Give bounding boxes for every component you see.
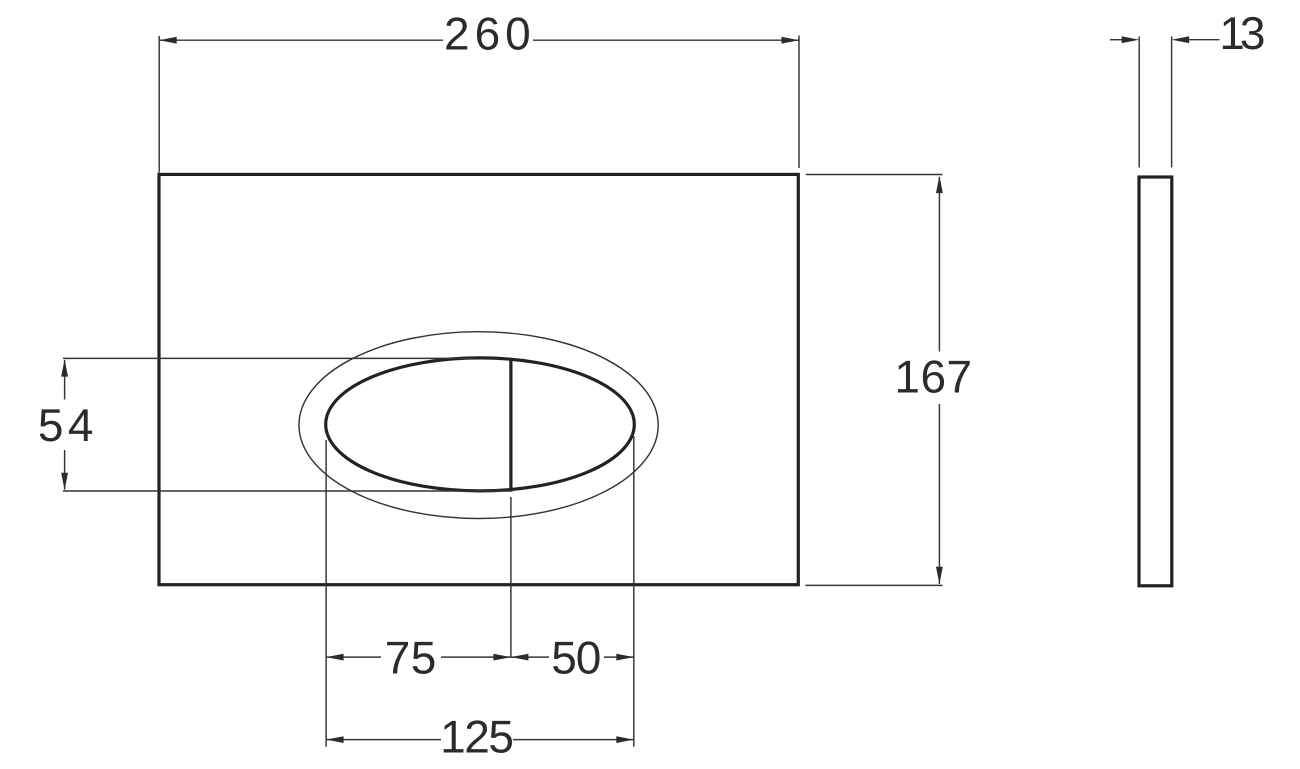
svg-text:50: 50: [551, 631, 600, 683]
svg-text:13: 13: [1219, 7, 1264, 59]
svg-text:75: 75: [385, 631, 437, 683]
svg-text:167: 167: [894, 350, 972, 402]
svg-text:260: 260: [444, 8, 536, 60]
svg-text:54: 54: [38, 399, 98, 451]
svg-text:125: 125: [440, 711, 512, 763]
